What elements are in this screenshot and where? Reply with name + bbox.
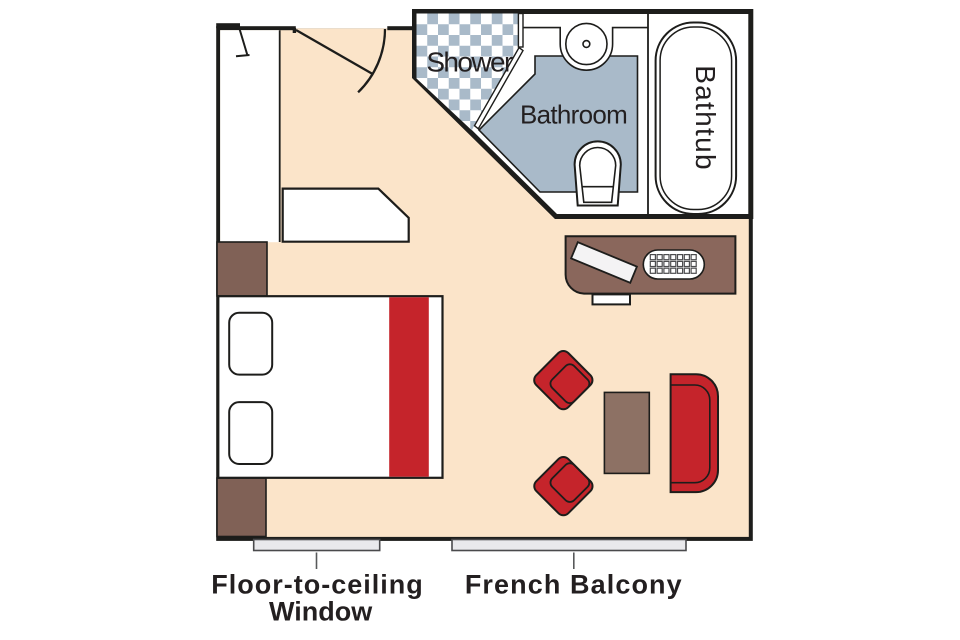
svg-text:French Balcony: French Balcony [465,570,683,600]
svg-text:Bathtub: Bathtub [690,65,721,171]
svg-text:Window: Window [269,597,373,627]
svg-text:Floor-to-ceiling: Floor-to-ceiling [211,570,423,600]
svg-text:Bathroom: Bathroom [520,100,627,130]
svg-text:Shower: Shower [426,47,513,78]
